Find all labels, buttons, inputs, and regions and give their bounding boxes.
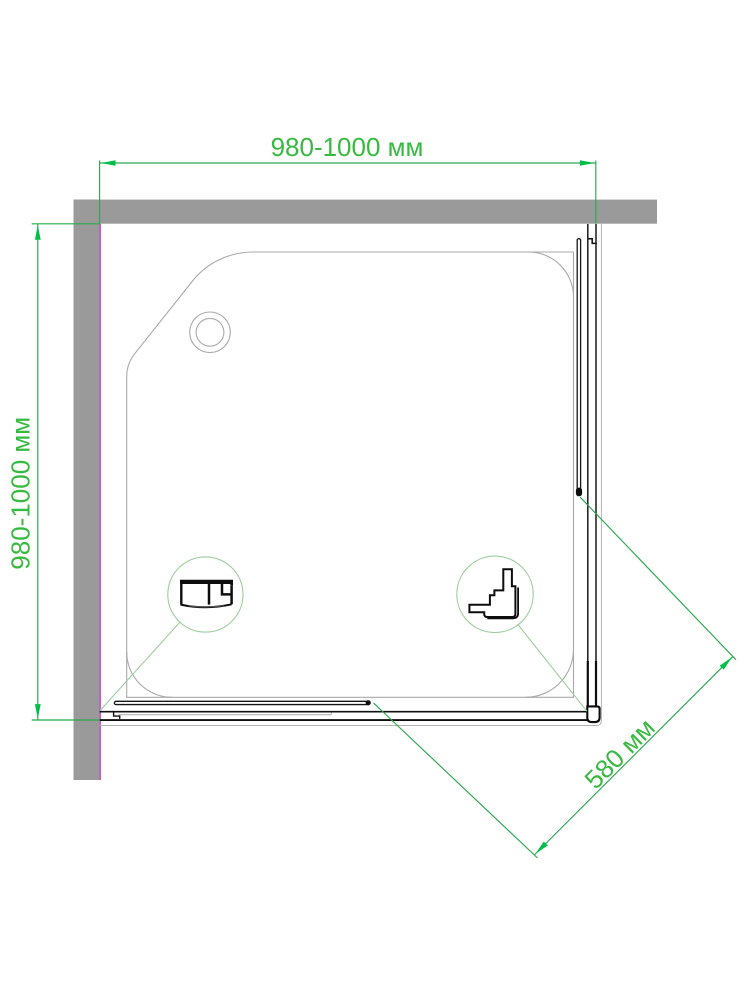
svg-text:980-1000 мм: 980-1000 мм bbox=[6, 417, 36, 570]
svg-text:980-1000 мм: 980-1000 мм bbox=[271, 132, 424, 162]
svg-text:580 мм: 580 мм bbox=[578, 712, 660, 794]
